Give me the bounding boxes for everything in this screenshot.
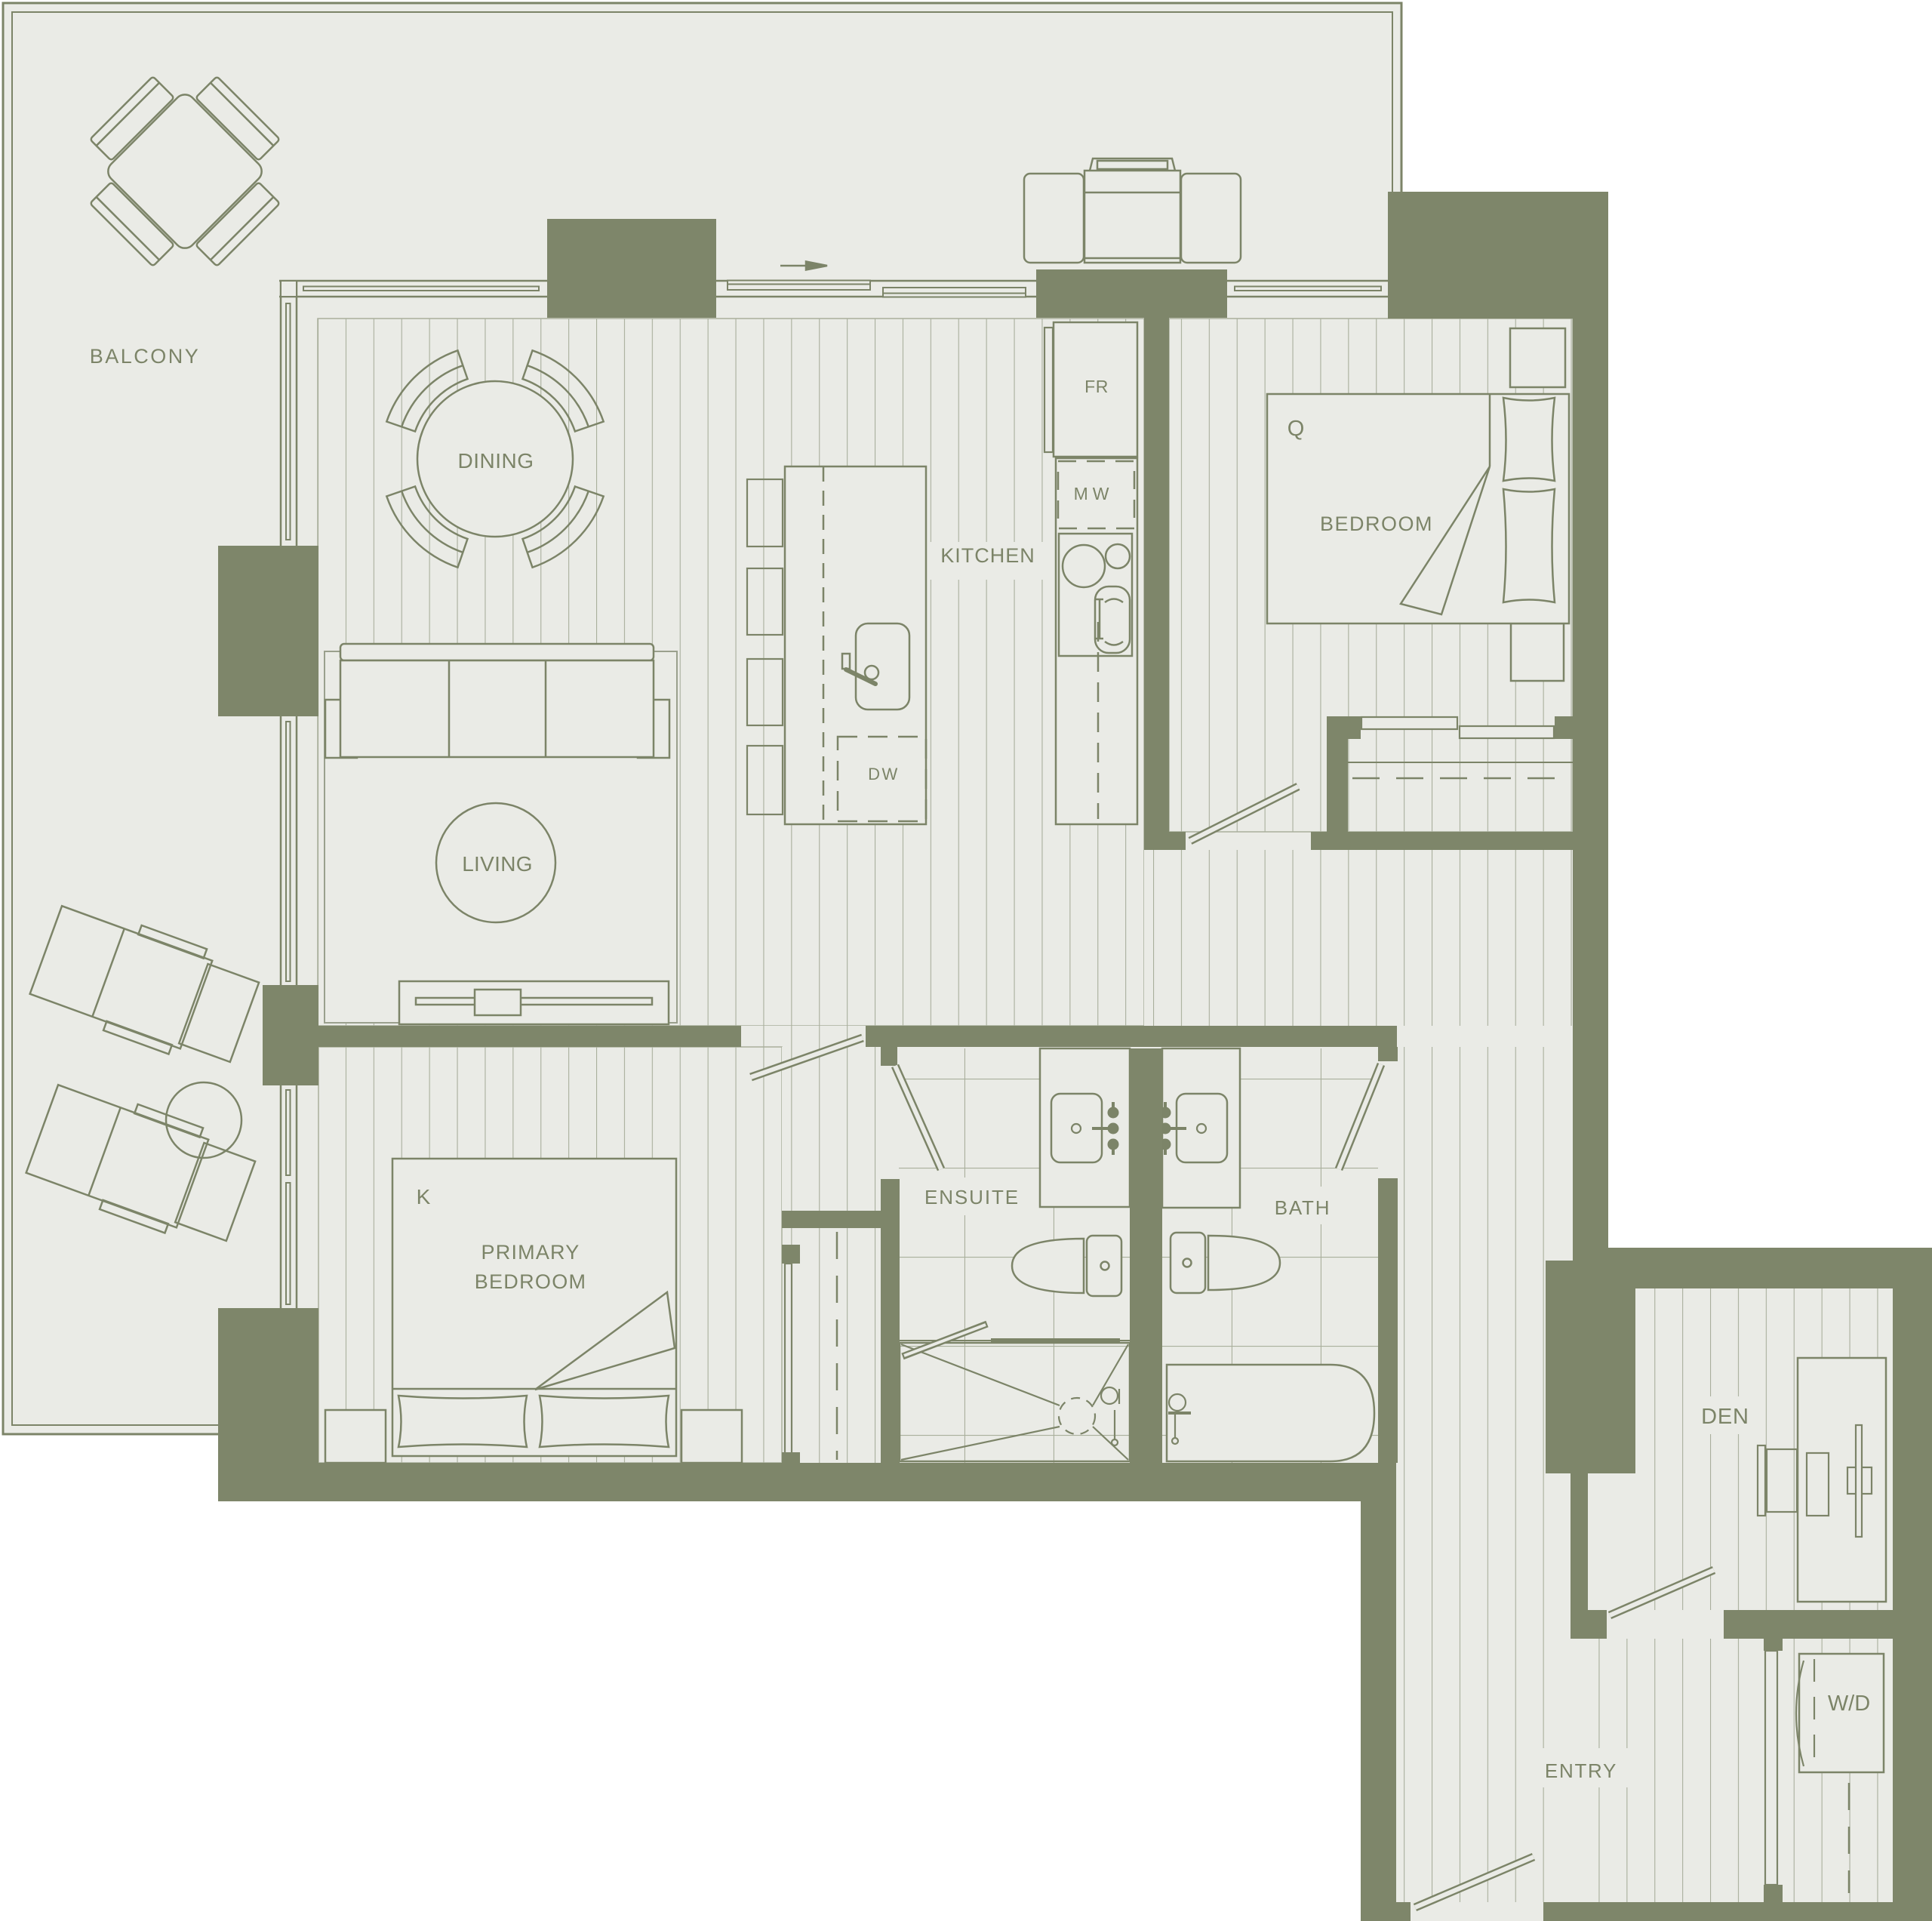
svg-text:DW: DW	[868, 765, 900, 783]
svg-text:DEN: DEN	[1701, 1405, 1749, 1429]
svg-text:PRIMARY: PRIMARY	[481, 1241, 580, 1264]
svg-text:Q: Q	[1287, 417, 1305, 441]
svg-text:LIVING: LIVING	[462, 852, 533, 876]
svg-text:BALCONY: BALCONY	[90, 345, 201, 368]
svg-text:BATH: BATH	[1275, 1196, 1331, 1219]
svg-text:FR: FR	[1084, 377, 1109, 396]
svg-text:ENSUITE: ENSUITE	[924, 1186, 1020, 1208]
svg-text:K: K	[417, 1185, 431, 1208]
svg-text:ENTRY: ENTRY	[1545, 1759, 1617, 1782]
svg-text:W/D: W/D	[1828, 1692, 1870, 1716]
svg-text:MW: MW	[1074, 484, 1114, 503]
svg-text:BEDROOM: BEDROOM	[475, 1270, 587, 1293]
svg-text:BEDROOM: BEDROOM	[1320, 513, 1433, 535]
svg-text:DINING: DINING	[458, 449, 534, 473]
svg-text:KITCHEN: KITCHEN	[940, 544, 1035, 567]
